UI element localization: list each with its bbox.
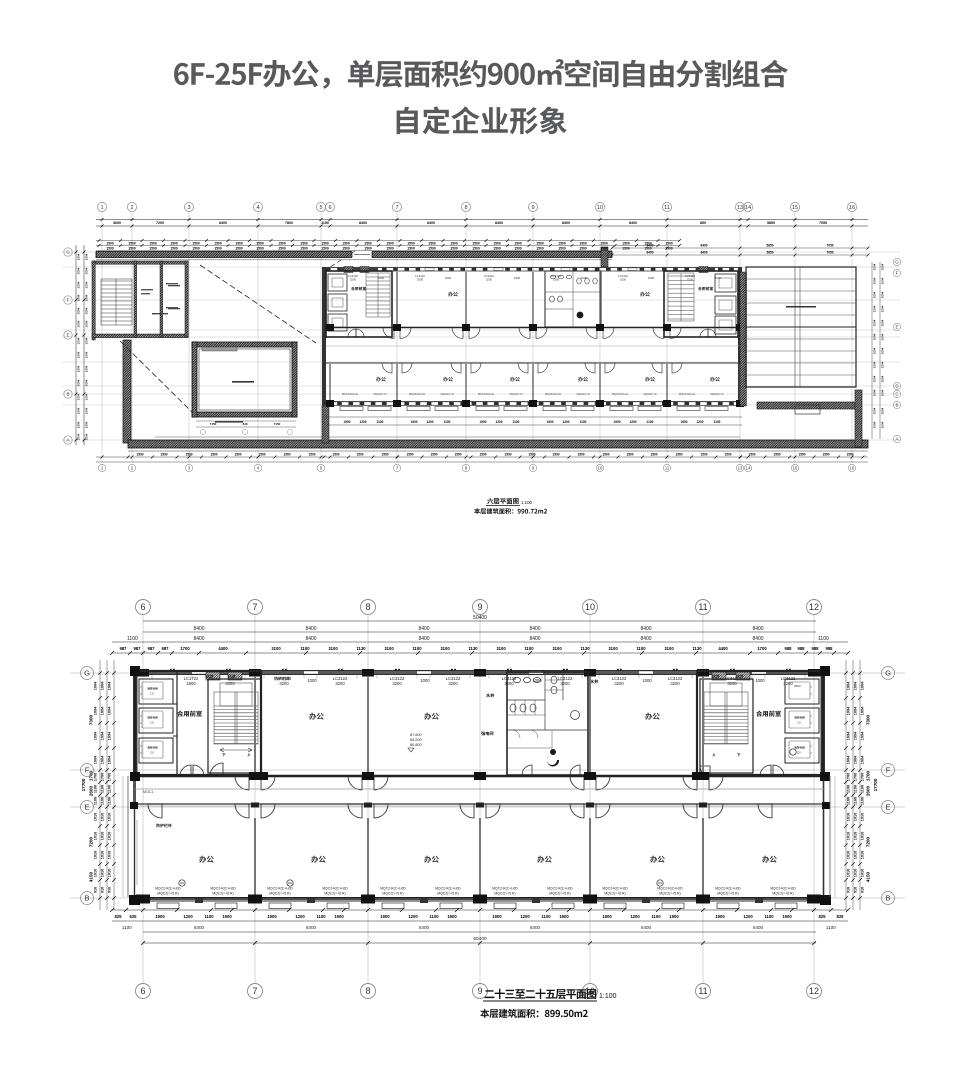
svg-text:MQC2-R(C+HJD: MQC2-R(C+HJD (770, 887, 796, 891)
svg-text:7050: 7050 (826, 244, 833, 248)
svg-text:1500: 1500 (106, 246, 114, 250)
svg-text:MQC2(=+5.R): MQC2(=+5.R) (437, 892, 458, 896)
svg-text:CO: CO (797, 751, 801, 755)
svg-text:1094: 1094 (101, 706, 105, 715)
svg-text:1004: 1004 (873, 277, 877, 284)
svg-text:1130: 1130 (692, 646, 702, 651)
svg-text:1094: 1094 (861, 706, 865, 715)
svg-text:MQC2-R(C+HJD: MQC2-R(C+HJD (210, 887, 236, 891)
svg-text:1500: 1500 (356, 453, 363, 457)
svg-text:4300: 4300 (225, 681, 235, 686)
svg-text:MQC2(=+5: MQC2(=+5 (374, 392, 387, 396)
svg-text:1500: 1500 (214, 246, 222, 250)
svg-text:2800: 2800 (794, 684, 801, 688)
svg-text:1500: 1500 (700, 453, 707, 457)
svg-text:87.600: 87.600 (410, 733, 422, 737)
svg-text:MQC2-R(C+HJD: MQC2-R(C+HJD (435, 887, 461, 891)
svg-text:1010: 1010 (847, 832, 851, 840)
svg-text:1010: 1010 (861, 869, 865, 877)
svg-text:8400: 8400 (752, 626, 763, 632)
svg-text:1004: 1004 (77, 307, 81, 314)
svg-text:1900: 1900 (669, 914, 679, 919)
svg-text:910: 910 (847, 887, 851, 893)
svg-text:1500: 1500 (256, 241, 264, 245)
svg-text:1010: 1010 (847, 851, 851, 859)
svg-text:5850: 5850 (767, 221, 775, 225)
svg-text:1500: 1500 (210, 453, 217, 457)
svg-text:3100: 3100 (552, 646, 562, 651)
svg-text:1900: 1900 (602, 914, 612, 919)
svg-text:12: 12 (809, 986, 819, 996)
svg-text:3100: 3100 (384, 646, 394, 651)
svg-text:1004: 1004 (85, 433, 89, 440)
svg-text:MQC2-R(C+HJD: MQC2-R(C+HJD (602, 887, 628, 891)
svg-text:1000: 1000 (581, 276, 588, 280)
svg-text:1800: 1800 (186, 681, 196, 686)
svg-text:1500: 1500 (192, 241, 200, 245)
svg-text:1010: 1010 (101, 813, 105, 821)
svg-text:G: G (885, 669, 891, 678)
svg-text:1200: 1200 (408, 914, 418, 919)
svg-text:A: A (896, 437, 899, 442)
svg-text:1500: 1500 (300, 241, 308, 245)
svg-text:D: D (895, 384, 898, 389)
svg-text:10: 10 (585, 602, 595, 612)
svg-text:987: 987 (162, 646, 170, 651)
svg-text:8: 8 (365, 602, 370, 612)
svg-text:MQC2(=+5.R): MQC2(=+5.R) (772, 892, 793, 896)
svg-text:1500: 1500 (504, 453, 511, 457)
svg-text:1100: 1100 (94, 785, 98, 793)
svg-text:1004: 1004 (101, 755, 105, 764)
svg-text:1200: 1200 (630, 914, 640, 919)
svg-text:825: 825 (819, 914, 827, 919)
svg-text:1010: 1010 (847, 813, 851, 821)
svg-text:1004: 1004 (861, 755, 865, 764)
svg-text:1500: 1500 (602, 453, 609, 457)
svg-text:3100: 3100 (440, 646, 450, 651)
svg-text:7150: 7150 (274, 422, 281, 426)
svg-text:1004: 1004 (881, 263, 885, 270)
svg-text:1010: 1010 (108, 813, 112, 821)
svg-text:MQC2-R(C+H: MQC2-R(C+H (679, 392, 695, 396)
svg-text:8400: 8400 (419, 925, 430, 930)
svg-text:9: 9 (531, 205, 534, 211)
svg-text:1004: 1004 (873, 375, 877, 382)
svg-text:50400: 50400 (473, 936, 487, 942)
svg-text:MQC2(=+5: MQC2(=+5 (510, 392, 523, 396)
svg-text:1500: 1500 (552, 453, 559, 457)
svg-text:1100: 1100 (580, 420, 587, 424)
svg-text:6: 6 (328, 205, 331, 211)
svg-text:1094: 1094 (847, 731, 851, 740)
svg-text:1130: 1130 (468, 646, 478, 651)
svg-text:1010: 1010 (94, 813, 98, 821)
svg-text:1004: 1004 (873, 305, 877, 312)
svg-text:3200: 3200 (560, 681, 570, 686)
svg-text:7: 7 (252, 602, 257, 612)
svg-text:3200: 3200 (335, 681, 345, 686)
svg-text:1004: 1004 (881, 277, 885, 284)
svg-text:1004: 1004 (77, 379, 81, 386)
svg-text:8400: 8400 (700, 244, 707, 248)
svg-text:17700: 17700 (873, 778, 878, 791)
svg-text:1500: 1500 (381, 453, 388, 457)
svg-text:1500: 1500 (558, 241, 566, 245)
svg-text:1004: 1004 (85, 267, 89, 274)
svg-text:7200: 7200 (866, 836, 871, 847)
svg-text:1900: 1900 (559, 914, 569, 919)
svg-text:1500: 1500 (214, 241, 222, 245)
svg-text:7200: 7200 (156, 221, 164, 225)
svg-text:13: 13 (737, 205, 743, 211)
svg-text:1500: 1500 (308, 453, 315, 457)
svg-text:1500: 1500 (622, 241, 630, 245)
svg-text:1900: 1900 (334, 914, 344, 919)
svg-text:910: 910 (101, 887, 105, 893)
svg-text:1010: 1010 (101, 869, 105, 877)
svg-text:8400: 8400 (646, 251, 653, 255)
svg-text:MQC2(=+5.R): MQC2(=+5.R) (382, 892, 403, 896)
svg-text:1094: 1094 (94, 706, 98, 715)
svg-text:B: B (885, 894, 890, 903)
svg-text:1500: 1500 (748, 453, 755, 457)
svg-text:MQC2(=+5.R): MQC2(=+5.R) (659, 892, 680, 896)
svg-text:1100: 1100 (854, 785, 858, 793)
svg-text:1100: 1100 (714, 420, 721, 424)
svg-text:1500: 1500 (822, 453, 829, 457)
svg-text:1900: 1900 (222, 914, 232, 919)
svg-text:MQC2-R(C+HJD: MQC2-R(C+HJD (657, 887, 683, 891)
svg-text:1000: 1000 (307, 678, 317, 683)
svg-text:1200: 1200 (359, 420, 366, 424)
svg-text:8400: 8400 (306, 925, 317, 930)
svg-text:8400: 8400 (219, 221, 227, 225)
svg-text:1004: 1004 (85, 407, 89, 414)
svg-text:1100: 1100 (429, 914, 439, 919)
svg-text:1500: 1500 (650, 453, 657, 457)
svg-text:MQC2(=+5.R): MQC2(=+5.R) (212, 892, 233, 896)
svg-text:1100: 1100 (412, 646, 422, 651)
svg-text:1500: 1500 (600, 246, 608, 250)
svg-text:625: 625 (130, 914, 138, 919)
svg-text:1004: 1004 (77, 253, 81, 260)
svg-text:1500: 1500 (106, 241, 114, 245)
svg-text:1004: 1004 (85, 379, 89, 386)
svg-text:7: 7 (395, 205, 398, 211)
svg-text:11: 11 (698, 986, 707, 996)
svg-text:1004: 1004 (77, 267, 81, 274)
svg-text:3200: 3200 (417, 278, 424, 282)
svg-text:1004: 1004 (77, 294, 81, 301)
svg-text:1010: 1010 (861, 813, 865, 821)
svg-text:910: 910 (108, 887, 112, 893)
svg-text:1004: 1004 (77, 365, 81, 372)
svg-text:1100: 1100 (101, 797, 105, 805)
svg-text:1010: 1010 (108, 869, 112, 877)
svg-text:825: 825 (115, 914, 123, 919)
svg-text:MQC2-R(C+HJD: MQC2-R(C+HJD (267, 887, 293, 891)
svg-text:1100: 1100 (524, 646, 534, 651)
svg-text:3200: 3200 (279, 681, 289, 686)
svg-text:988: 988 (826, 646, 834, 651)
svg-text:1100: 1100 (127, 636, 138, 642)
svg-text:1500: 1500 (192, 246, 200, 250)
svg-text:1094: 1094 (108, 706, 112, 715)
svg-text:1500: 1500 (300, 246, 308, 250)
svg-text:1094: 1094 (94, 731, 98, 740)
svg-text:1004: 1004 (77, 393, 81, 400)
svg-text:1004: 1004 (85, 337, 89, 344)
svg-text:5: 5 (320, 466, 323, 471)
svg-text:1010: 1010 (108, 832, 112, 840)
svg-text:1004: 1004 (85, 421, 89, 428)
svg-text:1004: 1004 (77, 433, 81, 440)
svg-text:B: B (896, 403, 899, 408)
svg-text:MQC2(=+5.R): MQC2(=+5.R) (717, 892, 738, 896)
svg-text:MQC2-R(C+HJD: MQC2-R(C+HJD (715, 887, 741, 891)
svg-text:MQC2(=+5.R): MQC2(=+5.R) (549, 892, 570, 896)
svg-text:1004: 1004 (77, 407, 81, 414)
svg-text:CO: CO (150, 692, 154, 696)
svg-text:1700: 1700 (847, 773, 851, 781)
svg-text:1500: 1500 (364, 241, 372, 245)
svg-text:1004: 1004 (861, 681, 865, 690)
svg-text:1004: 1004 (94, 755, 98, 764)
svg-text:7300: 7300 (866, 714, 871, 725)
svg-text:1500: 1500 (406, 453, 413, 457)
svg-text:5850: 5850 (766, 251, 773, 255)
svg-text:4400: 4400 (218, 646, 228, 651)
svg-text:1004: 1004 (881, 319, 885, 326)
svg-text:1500: 1500 (536, 246, 544, 250)
svg-text:4: 4 (256, 205, 259, 211)
svg-text:F: F (896, 271, 899, 276)
svg-text:1010: 1010 (861, 851, 865, 859)
svg-text:1500: 1500 (479, 453, 486, 457)
svg-text:MQC2(=+5: MQC2(=+5 (711, 392, 724, 396)
svg-text:1500: 1500 (536, 241, 544, 245)
svg-text:1500: 1500 (846, 453, 853, 457)
svg-text:1500: 1500 (128, 246, 136, 250)
svg-text:16: 16 (849, 205, 855, 211)
svg-text:1500: 1500 (136, 453, 143, 457)
svg-text:1130: 1130 (580, 646, 590, 651)
svg-text:1500: 1500 (235, 241, 243, 245)
svg-text:1500: 1500 (170, 241, 178, 245)
svg-text:1900: 1900 (447, 914, 457, 919)
svg-text:1004: 1004 (873, 319, 877, 326)
svg-text:G: G (84, 669, 90, 678)
svg-text:1:100: 1:100 (599, 993, 617, 1000)
svg-text:7: 7 (252, 986, 257, 996)
svg-text:1500: 1500 (407, 246, 415, 250)
svg-text:1700: 1700 (180, 646, 190, 651)
svg-text:1500: 1500 (170, 246, 178, 250)
svg-text:3: 3 (188, 466, 191, 471)
svg-text:1500: 1500 (160, 453, 167, 457)
svg-text:11: 11 (665, 466, 670, 471)
svg-text:7050: 7050 (826, 251, 833, 255)
svg-text:MQC2(=+5: MQC2(=+5 (441, 392, 454, 396)
svg-text:1010: 1010 (108, 851, 112, 859)
svg-text:1900: 1900 (680, 420, 687, 424)
svg-text:910: 910 (861, 887, 865, 893)
svg-text:MQC2(=+5.R): MQC2(=+5.R) (604, 892, 625, 896)
svg-text:3200: 3200 (614, 681, 624, 686)
svg-text:825: 825 (837, 914, 845, 919)
svg-text:1100: 1100 (204, 914, 214, 919)
svg-text:1700: 1700 (108, 773, 112, 781)
svg-text:1900: 1900 (492, 914, 502, 919)
svg-text:1010: 1010 (861, 832, 865, 840)
svg-text:MQC2-R(C+H: MQC2-R(C+H (612, 392, 628, 396)
svg-text:MQC2-R(C+H: MQC2-R(C+H (545, 392, 561, 396)
svg-text:1010: 1010 (101, 832, 105, 840)
svg-text:1200: 1200 (183, 914, 193, 919)
svg-text:1004: 1004 (873, 361, 877, 368)
svg-text:1500: 1500 (278, 246, 286, 250)
svg-text:1900: 1900 (267, 914, 277, 919)
svg-text:1100: 1100 (847, 797, 851, 805)
svg-text:8400: 8400 (562, 221, 570, 225)
svg-text:1004: 1004 (77, 337, 81, 344)
svg-text:1100: 1100 (513, 420, 520, 424)
svg-text:9: 9 (477, 602, 482, 612)
svg-text:1004: 1004 (873, 389, 877, 396)
svg-text:1900: 1900 (380, 914, 390, 919)
svg-text:1004: 1004 (847, 681, 851, 690)
svg-text:G: G (895, 260, 899, 265)
svg-text:MQC2-R(C+H: MQC2-R(C+H (342, 392, 358, 396)
svg-text:1004: 1004 (854, 681, 858, 690)
svg-text:910: 910 (94, 887, 98, 893)
svg-text:1500: 1500 (514, 241, 522, 245)
svg-text:1004: 1004 (85, 365, 89, 372)
svg-text:1500: 1500 (724, 453, 731, 457)
svg-text:1200: 1200 (295, 914, 305, 919)
svg-text:10: 10 (597, 205, 603, 211)
svg-text:1004: 1004 (85, 253, 89, 260)
svg-text:1900: 1900 (343, 420, 350, 424)
svg-text:1500: 1500 (149, 246, 157, 250)
svg-text:1004: 1004 (873, 347, 877, 354)
svg-text:1500: 1500 (450, 241, 458, 245)
svg-text:1004: 1004 (85, 281, 89, 288)
svg-text:1900: 1900 (410, 420, 417, 424)
svg-text:1500: 1500 (665, 241, 673, 245)
svg-text:1500: 1500 (493, 246, 501, 250)
svg-text:1900: 1900 (479, 420, 486, 424)
svg-text:850: 850 (700, 221, 706, 225)
svg-text:14: 14 (745, 205, 751, 211)
svg-text:MQC2(=+5.R): MQC2(=+5.R) (494, 892, 515, 896)
svg-text:8: 8 (365, 986, 370, 996)
svg-text:1100: 1100 (847, 785, 851, 793)
svg-text:1000: 1000 (378, 276, 385, 280)
svg-text:988: 988 (785, 646, 793, 651)
svg-text:1700: 1700 (101, 773, 105, 781)
svg-text:8400: 8400 (418, 636, 429, 642)
svg-text:1004: 1004 (85, 351, 89, 358)
svg-text:1900: 1900 (546, 420, 553, 424)
svg-text:1500: 1500 (579, 246, 587, 250)
svg-text:6: 6 (140, 602, 145, 612)
svg-text:8400: 8400 (193, 626, 204, 632)
svg-text:3100: 3100 (271, 646, 281, 651)
svg-text:8400: 8400 (359, 221, 367, 225)
svg-text:1500: 1500 (472, 241, 480, 245)
svg-text:1004: 1004 (873, 407, 877, 414)
svg-text:1500: 1500 (558, 246, 566, 250)
svg-text:10: 10 (598, 466, 603, 471)
svg-text:1900: 1900 (715, 914, 725, 919)
svg-text:G: G (66, 250, 70, 255)
svg-text:1500: 1500 (364, 246, 372, 250)
svg-text:910: 910 (854, 887, 858, 893)
svg-text:1100: 1100 (861, 797, 865, 805)
svg-text:1004: 1004 (85, 307, 89, 314)
svg-text:MQC2(=+5: MQC2(=+5 (644, 392, 657, 396)
svg-text:1500: 1500 (128, 241, 136, 245)
svg-text:8400: 8400 (640, 636, 651, 642)
svg-text:MQC2-R(C+HJD: MQC2-R(C+HJD (547, 887, 573, 891)
svg-text:MQC2-R(C+HJD: MQC2-R(C+HJD (492, 887, 518, 891)
svg-text:1094: 1094 (861, 731, 865, 740)
svg-text:1000: 1000 (514, 276, 521, 280)
svg-text:1500: 1500 (528, 453, 535, 457)
svg-text:240: 240 (242, 422, 247, 426)
svg-text:1004: 1004 (77, 320, 81, 327)
svg-text:3200: 3200 (392, 681, 402, 686)
svg-text:987: 987 (148, 646, 156, 651)
svg-text:3100: 3100 (664, 646, 674, 651)
svg-text:4: 4 (257, 466, 260, 471)
svg-text:8400: 8400 (495, 221, 503, 225)
svg-text:1004: 1004 (881, 407, 885, 414)
svg-text:3200: 3200 (727, 681, 737, 686)
svg-text:8400: 8400 (529, 636, 540, 642)
svg-text:1500: 1500 (577, 453, 584, 457)
svg-text:1100: 1100 (377, 420, 384, 424)
svg-text:11: 11 (698, 602, 707, 612)
svg-text:1500: 1500 (235, 246, 243, 250)
svg-text:E: E (84, 803, 89, 812)
svg-text:1004: 1004 (847, 755, 851, 764)
svg-text:1100: 1100 (818, 636, 829, 642)
svg-text:1200: 1200 (743, 914, 753, 919)
svg-text:1100: 1100 (826, 925, 836, 930)
svg-text:1500: 1500 (342, 241, 350, 245)
svg-text:3200: 3200 (448, 681, 458, 686)
svg-text:8400: 8400 (418, 626, 429, 632)
svg-text:1500: 1500 (283, 453, 290, 457)
svg-text:987: 987 (134, 646, 142, 651)
svg-text:1200: 1200 (562, 420, 569, 424)
svg-text:1500: 1500 (600, 241, 608, 245)
svg-text:1000: 1000 (648, 276, 655, 280)
svg-text:1500: 1500 (386, 241, 394, 245)
svg-text:1900: 1900 (782, 914, 792, 919)
svg-text:MQC2-R(C+HJD: MQC2-R(C+HJD (380, 887, 406, 891)
svg-text:3200: 3200 (620, 278, 627, 282)
svg-text:1700: 1700 (757, 646, 767, 651)
svg-text:1900: 1900 (613, 420, 620, 424)
svg-text:F: F (85, 766, 90, 775)
svg-text:8400: 8400 (640, 626, 651, 632)
svg-text:E: E (66, 333, 69, 338)
svg-text:1094: 1094 (101, 731, 105, 740)
